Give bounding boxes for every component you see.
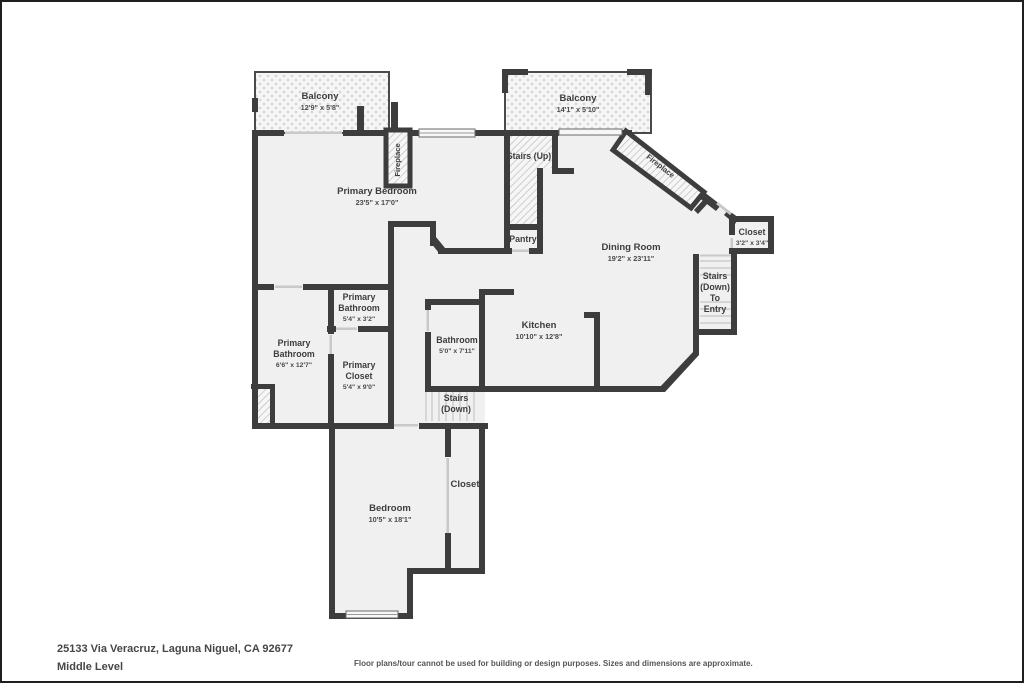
pantry-label: Pantry: [509, 234, 536, 244]
stairs-up-label: Stairs (Up): [507, 151, 552, 161]
bathroom-label: Bathroom: [436, 335, 478, 345]
level-title: Middle Level: [57, 661, 123, 673]
primary-bedroom-label: Primary Bedroom: [337, 186, 417, 197]
kitchen-dims: 10'10" x 12'8": [516, 332, 563, 341]
balcony-right-dims: 14'1" x 5'10": [557, 105, 600, 114]
stairs-entry-line3: To: [710, 293, 721, 303]
bedroom-fireplace-label: Fireplace: [393, 143, 402, 176]
stairs-entry-line2: (Down): [700, 282, 730, 292]
primary-bathroom-line2: Bathroom: [273, 349, 315, 359]
primary-bathroom-small-line1: Primary: [343, 292, 376, 302]
dining-room-label: Dining Room: [601, 242, 660, 253]
stairs-entry-line4: Entry: [704, 304, 727, 314]
dining-room-dims: 19'2" x 23'11": [608, 254, 655, 263]
stairs-down-line1: Stairs: [444, 393, 469, 403]
disclaimer-text: Floor plans/tour cannot be used for buil…: [354, 659, 753, 668]
property-address: 25133 Via Veracruz, Laguna Niguel, CA 92…: [57, 643, 293, 655]
balcony-right-label: Balcony: [560, 93, 598, 104]
entry-closet-dims: 3'2" x 3'4": [736, 240, 768, 247]
primary-closet-line1: Primary: [343, 360, 376, 370]
floorplan-drawing: Balcony 12'9" x 5'8" Balcony 14'1" x 5'1…: [2, 2, 1024, 683]
balcony-left-label: Balcony: [302, 91, 340, 102]
primary-bathroom-dims: 6'6" x 12'7": [276, 362, 312, 369]
stairs-entry-line1: Stairs: [703, 271, 728, 281]
balcony-left-dims: 12'9" x 5'8": [301, 103, 340, 112]
bathroom-dims: 5'0" x 7'11": [439, 348, 475, 355]
bedroom-dims: 10'5" x 18'1": [369, 515, 412, 524]
bedroom-label: Bedroom: [369, 503, 411, 514]
primary-bathroom-small-dims: 5'4" x 3'2": [343, 316, 375, 323]
floorplan-page: Balcony 12'9" x 5'8" Balcony 14'1" x 5'1…: [0, 0, 1024, 683]
bedroom-closet-label: Closet: [450, 479, 480, 490]
primary-closet-line2: Closet: [346, 371, 373, 381]
stairs-down-line2: (Down): [441, 404, 471, 414]
primary-bathroom-line1: Primary: [278, 338, 311, 348]
primary-bathroom-small-line2: Bathroom: [338, 303, 380, 313]
entry-closet-label: Closet: [739, 227, 766, 237]
primary-bedroom-dims: 23'5" x 17'0": [356, 198, 399, 207]
primary-closet-dims: 5'4" x 9'0": [343, 384, 375, 391]
kitchen-label: Kitchen: [522, 320, 557, 331]
